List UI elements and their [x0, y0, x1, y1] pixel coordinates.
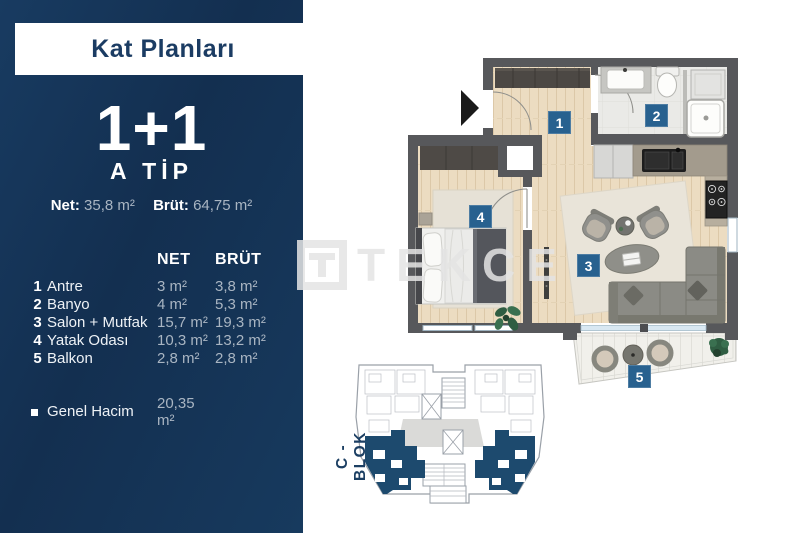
title-box: Kat Planları	[15, 23, 311, 75]
block-core	[397, 419, 484, 447]
blanket	[473, 229, 506, 303]
side-table	[616, 217, 634, 235]
headboard	[416, 228, 422, 304]
room-badge-yatak-odasi: 4	[469, 205, 492, 228]
room-name: Antre	[47, 278, 157, 295]
area-table: NET BRÜT 1 Antre 3 m² 3,8 m² 2 Banyo 4 m…	[28, 250, 286, 415]
entrance-arrow-icon	[461, 90, 479, 126]
entry-closet	[495, 68, 590, 88]
room-name: Balkon	[47, 350, 157, 367]
table-row: 3 Salon + Mutfak 15,7 m² 19,3 m²	[28, 313, 286, 331]
unit-tip-label: A TİP	[0, 158, 303, 185]
table-row: 4 Yatak Odası 10,3 m² 13,2 m²	[28, 332, 286, 350]
unit-area-summary: Net: 35,8 m² Brüt: 64,75 m²	[0, 197, 303, 214]
room-brut: 13,2 m²	[215, 332, 281, 349]
table-row: 5 Balkon 2,8 m² 2,8 m²	[28, 350, 286, 368]
pillow	[423, 268, 443, 302]
room-badge-salon: 3	[577, 254, 600, 277]
room-badge-banyo: 2	[645, 104, 668, 127]
bath-sink	[607, 70, 644, 89]
kitchen-faucet-icon	[676, 148, 681, 153]
net-label: Net:	[51, 197, 80, 214]
room-brut: 5,3 m²	[215, 296, 281, 313]
room-net: 15,7 m²	[157, 314, 215, 331]
room-brut: 3,8 m²	[215, 278, 281, 295]
room-name: Banyo	[47, 296, 157, 313]
table-row: 2 Banyo 4 m² 5,3 m²	[28, 295, 286, 313]
toilet-bowl	[658, 73, 677, 97]
room-brut: 19,3 m²	[215, 314, 281, 331]
total-label: Genel Hacim	[47, 403, 157, 420]
bedroom-wardrobe	[420, 146, 498, 170]
bath-faucet-icon	[623, 68, 627, 72]
unit-type: 1+1	[0, 98, 303, 158]
row-number: 4	[28, 332, 47, 349]
page-title: Kat Planları	[91, 35, 235, 64]
total-value: 20,35 m²	[157, 395, 215, 429]
room-net: 10,3 m²	[157, 332, 215, 349]
brut-value: 64,75 m²	[193, 197, 252, 214]
slider-frame	[640, 324, 648, 332]
square-bullet-icon	[31, 409, 38, 416]
room-net: 4 m²	[157, 296, 215, 313]
room-brut: 2,8 m²	[215, 350, 281, 367]
pillow	[423, 232, 444, 266]
balcony-chair	[649, 342, 671, 364]
room-net: 2,8 m²	[157, 350, 215, 367]
row-number: 2	[28, 296, 47, 313]
room-name: Yatak Odası	[47, 332, 157, 349]
net-value: 35,8 m²	[84, 197, 135, 214]
shower-drain	[704, 116, 709, 121]
page: Kat Planları 1+1 A TİP Net: 35,8 m² Brüt…	[0, 0, 800, 533]
room-badge-balkon: 5	[628, 365, 651, 388]
sidebar: Kat Planları 1+1 A TİP Net: 35,8 m² Brüt…	[0, 0, 303, 533]
row-number: 1	[28, 278, 47, 295]
room-net: 3 m²	[157, 278, 215, 295]
table-header: NET BRÜT	[28, 250, 286, 269]
block-plan	[345, 362, 555, 533]
shaft-niche	[507, 146, 533, 170]
room-badge-antre: 1	[548, 111, 571, 134]
room-name: Salon + Mutfak	[47, 314, 157, 331]
watermark-logo-icon	[297, 240, 347, 290]
nightstand	[419, 213, 432, 225]
floor-plan	[395, 50, 755, 410]
row-number: 3	[28, 314, 47, 331]
total-row: Genel Hacim 20,35 m²	[28, 395, 286, 415]
hall-wardrobe	[544, 247, 549, 299]
block-label: C - BLOK	[334, 419, 354, 493]
col-header-brut: BRÜT	[215, 251, 281, 269]
col-header-net: NET	[157, 251, 215, 269]
table-row: 1 Antre 3 m² 3,8 m²	[28, 277, 286, 295]
row-number: 5	[28, 350, 47, 367]
balcony-chair	[594, 348, 616, 370]
brut-label: Brüt:	[153, 197, 189, 214]
